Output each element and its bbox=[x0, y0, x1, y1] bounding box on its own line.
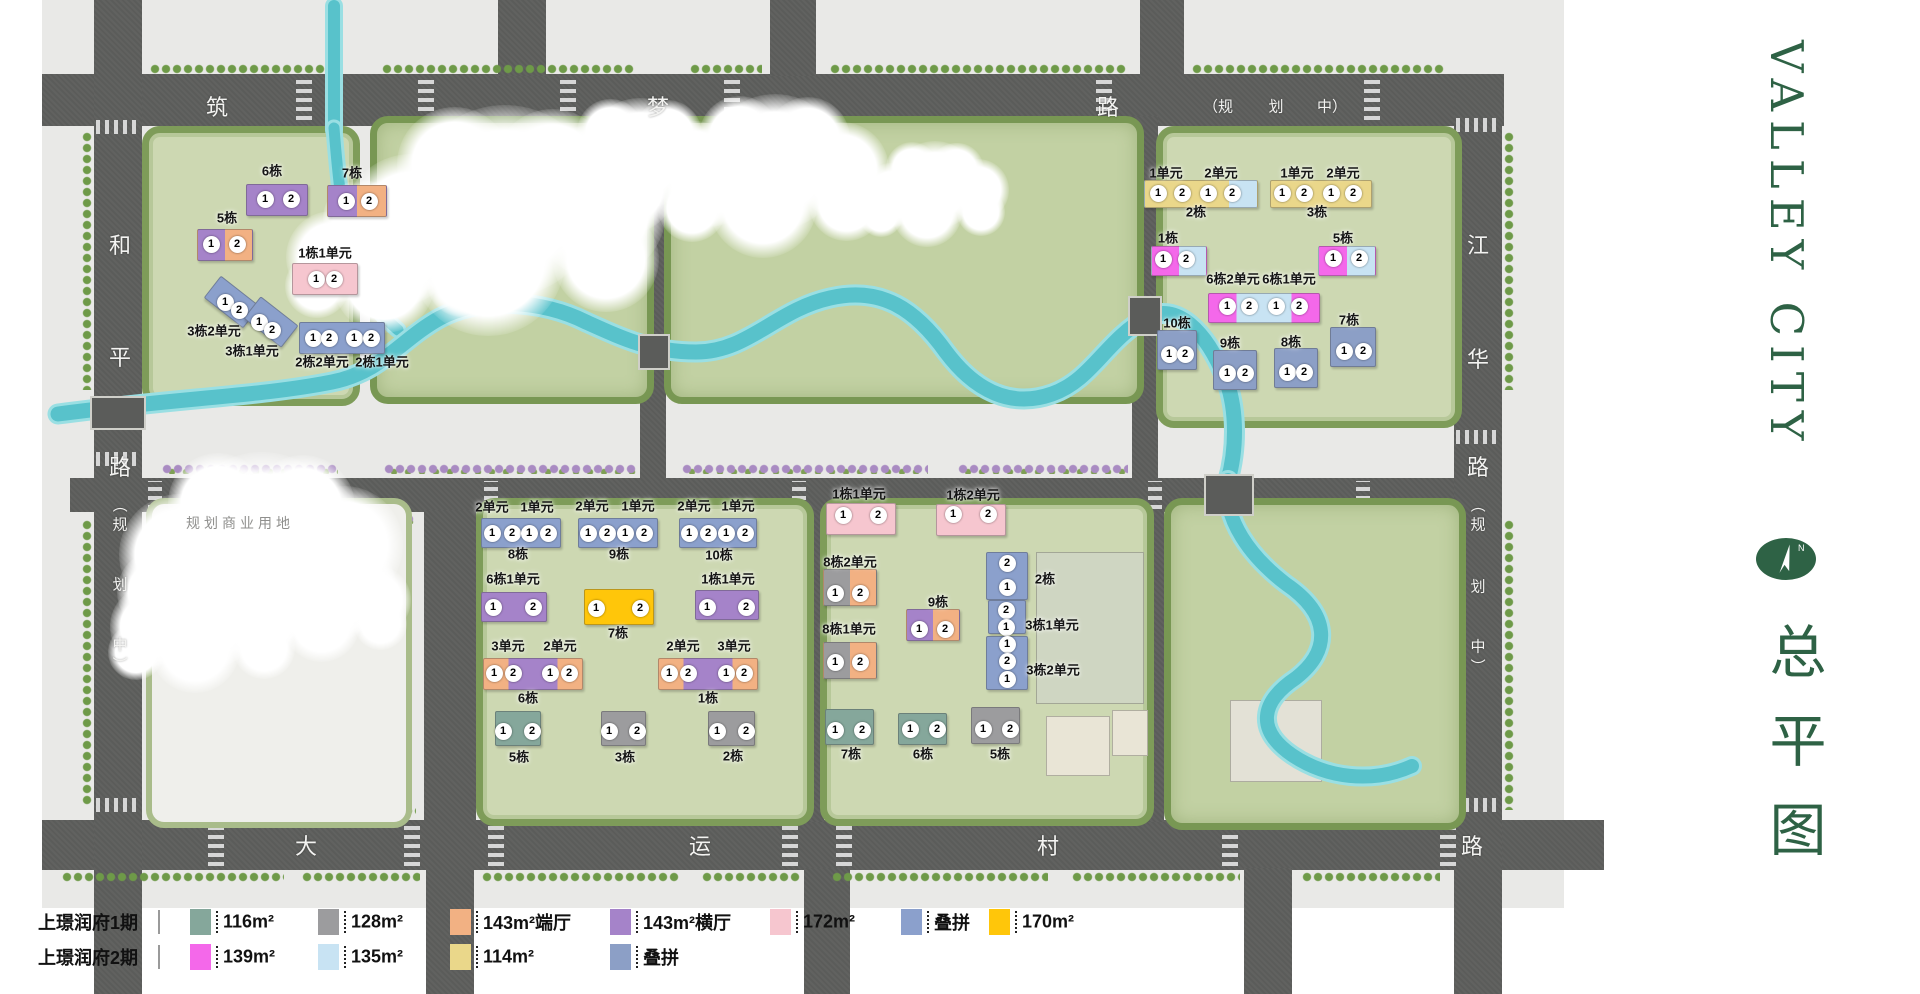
road-name-label: 中 bbox=[112, 634, 127, 655]
legend-item-label: 叠拼 bbox=[934, 909, 970, 935]
unit-badge: 1 bbox=[580, 525, 597, 542]
road-name-label: 江 bbox=[1467, 228, 1489, 260]
legend-item-label: 114m² bbox=[483, 947, 534, 968]
crosswalk bbox=[1456, 118, 1500, 132]
bridge bbox=[1130, 298, 1160, 334]
building-label: 2单元 bbox=[666, 636, 699, 655]
road-name-label: 大 bbox=[295, 829, 317, 861]
unit-badge: 2 bbox=[852, 654, 869, 671]
road-name-label: 路 bbox=[1461, 829, 1483, 861]
legend-item-label: 143m²横厅 bbox=[643, 909, 731, 935]
unit-badge: 2 bbox=[363, 330, 380, 347]
unit-badge: 1 bbox=[902, 721, 919, 738]
street-trees bbox=[682, 464, 928, 474]
building-label: 3栋 bbox=[1307, 202, 1327, 221]
road-name-label: 划 bbox=[1268, 96, 1283, 117]
unit-badge: 2 bbox=[1296, 364, 1313, 381]
unit-badge: 2 bbox=[361, 193, 378, 210]
unit-badge: 2 bbox=[1224, 185, 1241, 202]
unit-badge: 2 bbox=[736, 665, 753, 682]
unit-badge: 2 bbox=[1291, 298, 1308, 315]
unit-badge: 1 bbox=[975, 721, 992, 738]
street-trees bbox=[82, 132, 92, 390]
unit-badge: 2 bbox=[264, 322, 281, 339]
building-label: 1栋 bbox=[1158, 228, 1178, 247]
building-label: 6栋1单元 bbox=[1262, 269, 1315, 288]
unit-badge: 2 bbox=[1177, 346, 1194, 363]
crosswalk bbox=[96, 798, 140, 812]
legend-color-swatch bbox=[610, 909, 631, 935]
drawing-title: 总平图 bbox=[1752, 622, 1834, 889]
building bbox=[327, 185, 387, 217]
legend-dotted-divider bbox=[476, 946, 478, 968]
crosswalk bbox=[296, 80, 312, 120]
unit-badge: 1 bbox=[338, 193, 355, 210]
legend-color-swatch bbox=[318, 944, 339, 970]
unit-badge: 2 bbox=[326, 271, 343, 288]
map-area: 筑梦路（规划中）和平路（规划中）江华路（规划中）大运村路121212121212… bbox=[0, 0, 1920, 994]
building-label: 6栋1单元 bbox=[486, 569, 539, 588]
unit-badge: 2 bbox=[870, 507, 887, 524]
unit-badge: 2 bbox=[229, 236, 246, 253]
legend-dotted-divider bbox=[344, 946, 346, 968]
unit-badge: 1 bbox=[999, 671, 1016, 688]
parcel-park bbox=[664, 116, 1144, 404]
street-trees bbox=[382, 64, 634, 74]
street-trees bbox=[1302, 872, 1440, 882]
road-name-label: 和 bbox=[109, 228, 131, 260]
building-label: 6栋2单元 bbox=[1206, 269, 1259, 288]
unit-badge: 1 bbox=[1336, 343, 1353, 360]
unit-badge: 2 bbox=[540, 525, 557, 542]
unit-badge: 1 bbox=[1325, 250, 1342, 267]
unit-badge: 1 bbox=[1219, 365, 1236, 382]
unit-badge: 2 bbox=[738, 599, 755, 616]
unit-badge: 2 bbox=[283, 191, 300, 208]
road-name-label: ） bbox=[1468, 658, 1489, 673]
building-label: 2栋 bbox=[1035, 569, 1055, 588]
unit-badge: 1 bbox=[1150, 185, 1167, 202]
unit-badge: 2 bbox=[999, 555, 1016, 572]
road-name-label: 划 bbox=[112, 574, 127, 595]
building-label: 8栋 bbox=[508, 544, 528, 563]
crosswalk bbox=[1222, 824, 1238, 866]
street-trees bbox=[702, 872, 800, 882]
road-segment bbox=[1140, 0, 1184, 76]
building-label: 2栋 bbox=[1186, 202, 1206, 221]
amenity-building bbox=[1230, 700, 1322, 782]
building-label: 9栋 bbox=[1220, 333, 1240, 352]
legend-dotted-divider bbox=[636, 911, 638, 933]
road-name-label: （ bbox=[1468, 497, 1489, 512]
legend-phase-label: 上璟润府2期 bbox=[38, 944, 138, 970]
legend-dotted-divider bbox=[1015, 911, 1017, 933]
legend-color-swatch bbox=[610, 944, 631, 970]
crosswalk bbox=[836, 824, 852, 866]
crosswalk bbox=[96, 120, 140, 134]
road-name-label: 平 bbox=[109, 340, 131, 372]
road-segment bbox=[424, 510, 476, 822]
road-name-label: 村 bbox=[1037, 829, 1059, 861]
legend-color-swatch bbox=[190, 944, 211, 970]
parcel-park bbox=[370, 116, 654, 404]
unit-badge: 1 bbox=[827, 654, 844, 671]
building-label: 5栋 bbox=[509, 747, 529, 766]
crosswalk bbox=[560, 80, 576, 120]
unit-badge: 2 bbox=[632, 600, 649, 617]
unit-badge: 2 bbox=[1178, 251, 1195, 268]
street-trees bbox=[1504, 132, 1514, 390]
unit-badge: 1 bbox=[484, 525, 501, 542]
unit-badge: 1 bbox=[998, 619, 1015, 636]
unit-badge: 1 bbox=[999, 636, 1016, 653]
crosswalk bbox=[404, 824, 420, 866]
crosswalk bbox=[418, 80, 434, 120]
unit-badge: 1 bbox=[601, 723, 618, 740]
legend-color-swatch bbox=[318, 909, 339, 935]
crosswalk bbox=[724, 80, 740, 120]
legend-dotted-divider bbox=[927, 911, 929, 933]
street-trees bbox=[1504, 520, 1514, 810]
building-label: 1栋1单元 bbox=[832, 484, 885, 503]
unit-badge: 2 bbox=[629, 723, 646, 740]
crosswalk bbox=[488, 824, 504, 866]
unit-badge: 1 bbox=[1219, 298, 1236, 315]
unit-badge: 1 bbox=[827, 722, 844, 739]
street-trees bbox=[62, 872, 284, 882]
unit-badge: 1 bbox=[1279, 364, 1296, 381]
unit-badge: 1 bbox=[945, 506, 962, 523]
legend-item-label: 139m² bbox=[223, 947, 275, 968]
road-name-label: （规 bbox=[1203, 96, 1233, 117]
legend-dotted-divider bbox=[216, 911, 218, 933]
unit-badge: 1 bbox=[542, 665, 559, 682]
unit-badge: 1 bbox=[1274, 185, 1291, 202]
unit-badge: 1 bbox=[827, 585, 844, 602]
building-label: 5栋 bbox=[1333, 228, 1353, 247]
street-trees bbox=[832, 872, 1048, 882]
building-label: 2单元 bbox=[575, 496, 608, 515]
building-label: 规划商业用地 bbox=[186, 513, 294, 533]
street-trees bbox=[958, 464, 1128, 474]
legend-item-label: 172m² bbox=[803, 912, 855, 933]
building-label: 1单元 bbox=[1280, 163, 1313, 182]
bridge bbox=[1206, 476, 1252, 514]
building-label: 2单元 bbox=[1326, 163, 1359, 182]
site-master-plan: 筑梦路（规划中）和平路（规划中）江华路（规划中）大运村路121212121212… bbox=[0, 0, 1920, 994]
legend-item-label: 116m² bbox=[223, 912, 274, 933]
unit-badge: 1 bbox=[1200, 185, 1217, 202]
road-segment bbox=[770, 0, 816, 76]
building-label: 2栋2单元 bbox=[295, 352, 348, 371]
north-compass-icon: N bbox=[1755, 536, 1817, 582]
unit-badge: 2 bbox=[525, 599, 542, 616]
building-label: 6栋 bbox=[262, 161, 282, 180]
unit-badge: 2 bbox=[1351, 250, 1368, 267]
unit-badge: 1 bbox=[699, 599, 716, 616]
building-label: 2栋1单元 bbox=[355, 352, 408, 371]
crosswalk bbox=[782, 824, 798, 866]
unit-badge: 1 bbox=[709, 723, 726, 740]
unit-badge: 2 bbox=[937, 621, 954, 638]
unit-badge: 2 bbox=[524, 723, 541, 740]
parcel-com bbox=[146, 498, 412, 828]
unit-badge: 2 bbox=[599, 525, 616, 542]
unit-badge: 2 bbox=[321, 330, 338, 347]
legend-item-label: 128m² bbox=[351, 912, 403, 933]
street-trees bbox=[830, 64, 1126, 74]
road-name-label: 中） bbox=[1317, 96, 1347, 117]
unit-badge: 2 bbox=[998, 602, 1015, 619]
unit-badge: 1 bbox=[681, 525, 698, 542]
legend-color-swatch bbox=[450, 909, 471, 935]
unit-badge: 2 bbox=[1241, 298, 1258, 315]
building-label: 3栋2单元 bbox=[187, 321, 240, 340]
legend-dotted-divider bbox=[636, 946, 638, 968]
street-trees bbox=[690, 64, 762, 74]
project-title: VALLEY CITY bbox=[1760, 40, 1813, 560]
unit-badge: 1 bbox=[308, 271, 325, 288]
unit-badge: 2 bbox=[231, 302, 248, 319]
legend-phase-label: 上璟润府1期 bbox=[38, 909, 138, 935]
road-name-label: （ bbox=[110, 497, 131, 512]
legend-phase-divider bbox=[158, 945, 160, 969]
amenity-building bbox=[1112, 710, 1148, 756]
unit-badge: 2 bbox=[504, 525, 521, 542]
legend-color-swatch bbox=[770, 909, 791, 935]
building-label: 3单元 bbox=[491, 636, 524, 655]
building-label: 7栋 bbox=[342, 163, 362, 182]
road-name-label: 路 bbox=[1467, 450, 1489, 482]
legend-item-label: 170m² bbox=[1022, 912, 1074, 933]
building-label: 1单元 bbox=[621, 496, 654, 515]
building-label: 2单元 bbox=[1204, 163, 1237, 182]
legend-color-swatch bbox=[901, 909, 922, 935]
crosswalk bbox=[1364, 80, 1380, 120]
building-label: 1单元 bbox=[1149, 163, 1182, 182]
building-label: 8栋2单元 bbox=[823, 552, 876, 571]
unit-badge: 2 bbox=[1296, 185, 1313, 202]
building-label: 1单元 bbox=[520, 497, 553, 516]
road-name-label: 运 bbox=[689, 829, 711, 861]
amenity-building bbox=[1046, 716, 1110, 776]
bridge bbox=[640, 336, 668, 368]
building-label: 9栋 bbox=[609, 544, 629, 563]
building-label: 2单元 bbox=[543, 636, 576, 655]
unit-badge: 1 bbox=[999, 579, 1016, 596]
unit-badge: 2 bbox=[929, 721, 946, 738]
building-label: 3单元 bbox=[717, 636, 750, 655]
unit-badge: 2 bbox=[1345, 185, 1362, 202]
unit-badge: 1 bbox=[257, 191, 274, 208]
legend-item-label: 叠拼 bbox=[643, 944, 679, 970]
crosswalk bbox=[1440, 824, 1456, 866]
unit-badge: 2 bbox=[700, 525, 717, 542]
unit-badge: 1 bbox=[485, 599, 502, 616]
bridge bbox=[92, 398, 144, 428]
road-name-label: 路 bbox=[1097, 90, 1119, 122]
building-label: 1单元 bbox=[721, 496, 754, 515]
unit-badge: 1 bbox=[661, 665, 678, 682]
building-label: 8栋 bbox=[1281, 332, 1301, 351]
building-label: 10栋 bbox=[1163, 313, 1190, 332]
building-label: 1栋 bbox=[698, 688, 718, 707]
street-trees bbox=[1192, 64, 1444, 74]
building-label: 3栋 bbox=[615, 747, 635, 766]
unit-badge: 1 bbox=[1161, 346, 1178, 363]
road-name-label: 划 bbox=[1470, 576, 1485, 597]
street-trees bbox=[82, 520, 92, 806]
unit-badge: 1 bbox=[911, 621, 928, 638]
unit-badge: 1 bbox=[495, 723, 512, 740]
building-label: 9栋 bbox=[928, 592, 948, 611]
unit-badge: 1 bbox=[718, 665, 735, 682]
building-label: 3栋1单元 bbox=[225, 341, 278, 360]
unit-badge: 2 bbox=[505, 665, 522, 682]
street-trees bbox=[384, 464, 636, 474]
building-label: 5栋 bbox=[217, 208, 237, 227]
unit-badge: 2 bbox=[561, 665, 578, 682]
legend-color-swatch bbox=[450, 944, 471, 970]
crosswalk bbox=[208, 824, 224, 866]
legend-dotted-divider bbox=[344, 911, 346, 933]
building-label: 2栋 bbox=[723, 746, 743, 765]
building-label: 2单元 bbox=[677, 496, 710, 515]
street-trees bbox=[302, 872, 420, 882]
unit-badge: 2 bbox=[1237, 365, 1254, 382]
street-trees bbox=[1072, 872, 1240, 882]
unit-badge: 1 bbox=[617, 525, 634, 542]
legend-color-swatch bbox=[989, 909, 1010, 935]
road-name-label: 规 bbox=[1470, 514, 1485, 535]
road-segment bbox=[1244, 868, 1292, 994]
street-trees bbox=[482, 872, 680, 882]
building-label: 7栋 bbox=[608, 623, 628, 642]
building-label: 3栋2单元 bbox=[1026, 660, 1079, 679]
road-name-label: ） bbox=[110, 656, 131, 671]
unit-badge: 2 bbox=[1002, 721, 1019, 738]
unit-badge: 2 bbox=[680, 665, 697, 682]
building-label: 1栋1单元 bbox=[298, 243, 351, 262]
legend: 上璟润府1期116m²128m²143m²端厅143m²横厅172m²叠拼170… bbox=[0, 900, 1200, 994]
legend-phase-divider bbox=[158, 910, 160, 934]
unit-badge: 1 bbox=[521, 525, 538, 542]
unit-badge: 2 bbox=[737, 525, 754, 542]
street-trees bbox=[162, 464, 338, 474]
unit-badge: 2 bbox=[999, 653, 1016, 670]
building-label: 5栋 bbox=[990, 744, 1010, 763]
road-name-label: 路 bbox=[109, 450, 131, 482]
legend-item-label: 143m²端厅 bbox=[483, 909, 571, 935]
building-label: 6栋 bbox=[913, 744, 933, 763]
street-trees bbox=[150, 64, 332, 74]
road-name-label: 中 bbox=[1470, 636, 1485, 657]
unit-badge: 1 bbox=[1155, 251, 1172, 268]
unit-badge: 2 bbox=[1355, 343, 1372, 360]
road-name-label: 筑 bbox=[206, 90, 228, 122]
building-label: 1栋1单元 bbox=[701, 569, 754, 588]
unit-badge: 2 bbox=[738, 723, 755, 740]
unit-badge: 2 bbox=[854, 722, 871, 739]
unit-badge: 2 bbox=[852, 585, 869, 602]
road-name-label: 梦 bbox=[647, 90, 669, 122]
compass-n-letter: N bbox=[1798, 543, 1805, 553]
unit-badge: 1 bbox=[203, 236, 220, 253]
legend-dotted-divider bbox=[476, 911, 478, 933]
unit-badge: 1 bbox=[305, 330, 322, 347]
building-label: 1栋2单元 bbox=[946, 485, 999, 504]
building-label: 8栋1单元 bbox=[822, 619, 875, 638]
crosswalk bbox=[1456, 430, 1500, 444]
building-label: 7栋 bbox=[1339, 310, 1359, 329]
unit-badge: 1 bbox=[718, 525, 735, 542]
unit-badge: 1 bbox=[1323, 185, 1340, 202]
unit-badge: 1 bbox=[1268, 298, 1285, 315]
branding-panel: VALLEY CITY N 总平图 bbox=[1700, 0, 1920, 994]
building-label: 10栋 bbox=[705, 545, 732, 564]
unit-badge: 2 bbox=[980, 506, 997, 523]
building-label: 7栋 bbox=[841, 744, 861, 763]
unit-badge: 1 bbox=[588, 600, 605, 617]
building-label: 3栋1单元 bbox=[1025, 615, 1078, 634]
legend-dotted-divider bbox=[216, 946, 218, 968]
unit-badge: 1 bbox=[346, 330, 363, 347]
building-label: 2单元 bbox=[475, 497, 508, 516]
legend-dotted-divider bbox=[796, 911, 798, 933]
unit-badge: 1 bbox=[486, 665, 503, 682]
legend-item-label: 135m² bbox=[351, 947, 403, 968]
unit-badge: 2 bbox=[636, 525, 653, 542]
road-name-label: 规 bbox=[112, 514, 127, 535]
legend-color-swatch bbox=[190, 909, 211, 935]
unit-badge: 2 bbox=[1174, 185, 1191, 202]
building-label: 6栋 bbox=[518, 688, 538, 707]
unit-badge: 1 bbox=[835, 507, 852, 524]
road-name-label: 华 bbox=[1467, 342, 1489, 374]
